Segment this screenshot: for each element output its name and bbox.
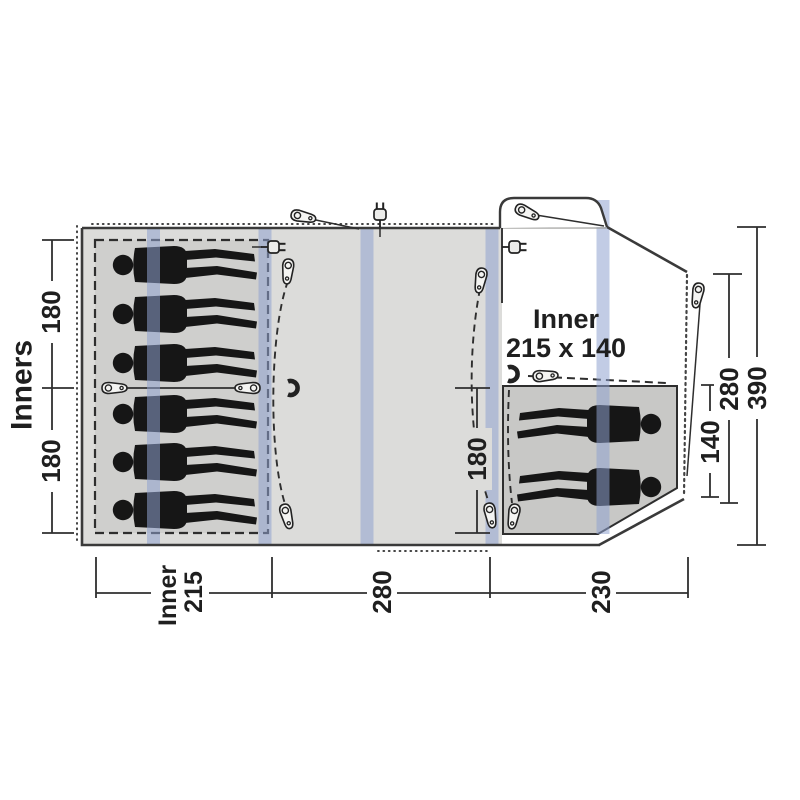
dim-value: 230 [586,570,616,613]
dim-label-left-bottom: 180 [36,430,66,492]
zipper-pull-icon [235,383,260,394]
inner-title-line2: 215 x 140 [506,333,626,363]
air-tube [361,228,374,545]
dim-label-140: 140 [695,411,725,473]
dim-value: 180 [36,439,66,482]
tent-porch-slant-wall [607,227,687,272]
dim-label-living-depth: 180 [462,428,492,490]
magnet-clip-icon [508,367,518,381]
dim-value: 280 [714,367,744,410]
zipper-pull-icon [533,370,559,382]
guy-peg-icon [690,282,705,309]
dim-label-390: 390 [742,357,772,419]
air-tube [147,228,160,545]
guy-peg-icon [290,209,317,225]
dim-value: 180 [462,437,492,480]
dim-value: 280 [367,570,397,613]
zipper-pull-icon [102,383,127,394]
dim-value: 140 [695,420,725,463]
power-inlet-icon [502,241,527,253]
dim-label-bottom-230: 230 [586,561,616,623]
dim-label-inner-215: Inner 215 [151,556,209,628]
inner-title-line1: Inner [533,304,600,334]
dotted-porch-door-edge [684,275,687,496]
air-tube [597,200,610,534]
tent-floorplan-diagram: Inners 180 180 180 140 280 390 Inner 215… [0,0,800,800]
dim-value: 390 [742,366,772,409]
inners-label-text: Inners [6,340,39,430]
dim-label-bottom-280: 280 [367,561,397,623]
floorplan-canvas: Inners 180 180 180 140 280 390 Inner 215… [0,0,800,800]
dim-label-left-top: 180 [36,281,66,343]
dim-label-280-right: 280 [714,358,744,420]
inners-side-label: Inners [6,340,39,430]
dim-value: 180 [36,290,66,333]
